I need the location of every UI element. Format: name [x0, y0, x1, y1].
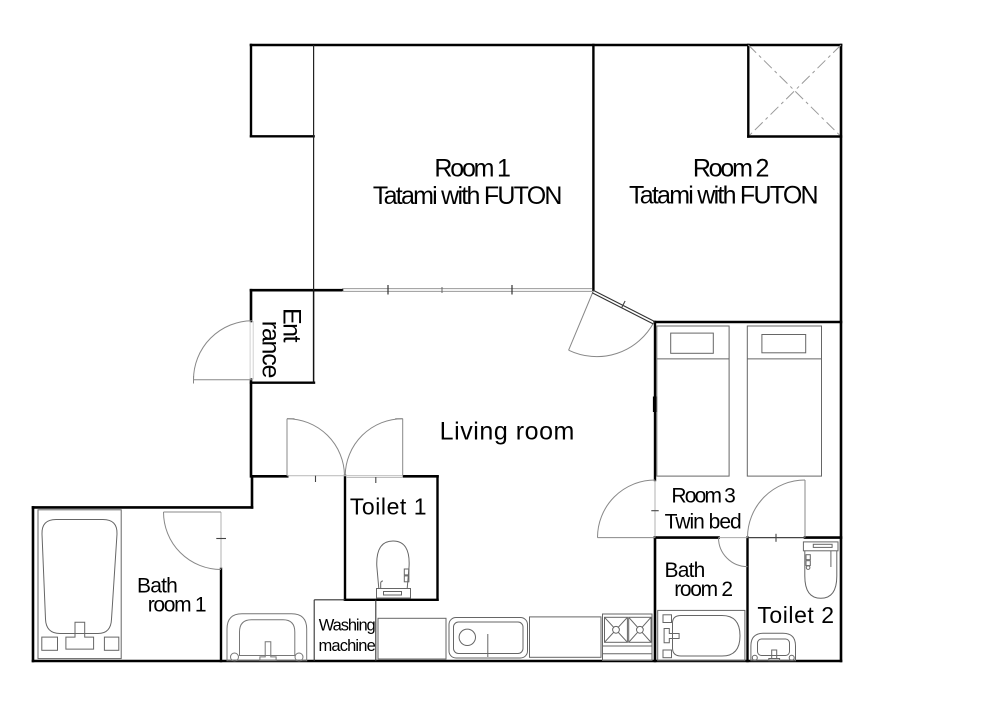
svg-text:room 2: room 2 [674, 578, 732, 601]
svg-text:Twin bed: Twin bed [665, 510, 741, 533]
svg-text:rance: rance [257, 321, 285, 378]
svg-text:Toilet 2: Toilet 2 [757, 602, 834, 628]
svg-text:Washing: Washing [319, 617, 376, 635]
svg-text:Living room: Living room [440, 418, 575, 446]
svg-text:Room 2: Room 2 [693, 154, 769, 182]
svg-text:Room 1: Room 1 [434, 155, 510, 183]
svg-text:Room 3: Room 3 [671, 485, 735, 508]
svg-text:Toilet 1: Toilet 1 [350, 494, 427, 520]
svg-text:machine: machine [318, 637, 375, 655]
svg-text:Tatami with FUTON: Tatami with FUTON [373, 182, 562, 210]
svg-text:room 1: room 1 [148, 594, 206, 617]
svg-text:Tatami with FUTON: Tatami with FUTON [629, 182, 818, 210]
